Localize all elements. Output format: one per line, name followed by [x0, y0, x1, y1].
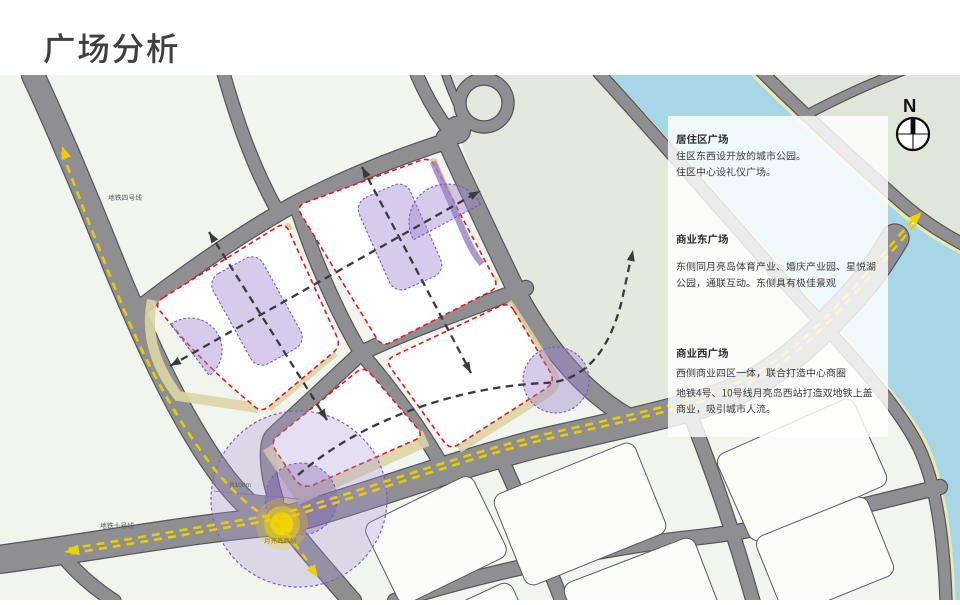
svg-text:R100m: R100m — [230, 482, 251, 489]
svg-text:N: N — [903, 95, 916, 116]
